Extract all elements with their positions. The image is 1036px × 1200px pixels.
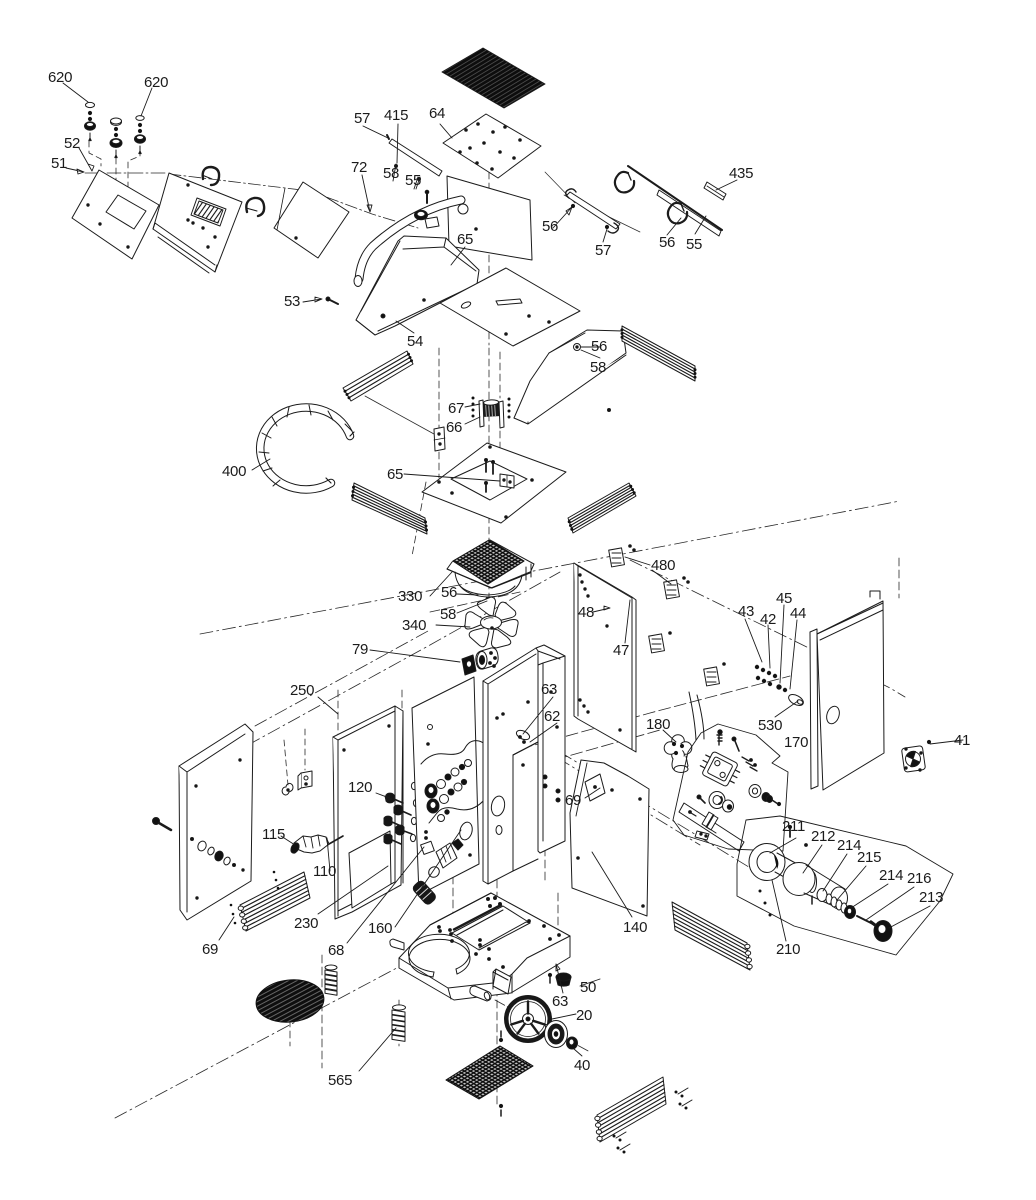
- svg-text:41: 41: [954, 732, 970, 749]
- svg-text:55: 55: [405, 172, 421, 189]
- svg-text:211: 211: [782, 818, 805, 835]
- svg-text:415: 415: [384, 107, 408, 124]
- svg-text:213: 213: [919, 889, 943, 906]
- svg-text:160: 160: [368, 920, 392, 937]
- svg-text:215: 215: [857, 849, 881, 866]
- svg-text:65: 65: [457, 231, 473, 248]
- svg-text:63: 63: [541, 681, 557, 698]
- svg-text:480: 480: [651, 557, 675, 574]
- svg-text:47: 47: [613, 642, 629, 659]
- svg-text:51: 51: [51, 155, 67, 172]
- svg-text:214: 214: [879, 867, 903, 884]
- svg-text:330: 330: [398, 588, 422, 605]
- svg-text:115: 115: [262, 826, 285, 843]
- svg-text:72: 72: [351, 159, 367, 176]
- svg-text:42: 42: [760, 611, 776, 628]
- svg-text:230: 230: [294, 915, 318, 932]
- svg-text:44: 44: [790, 605, 806, 622]
- svg-text:69: 69: [202, 941, 218, 958]
- svg-text:79: 79: [352, 641, 368, 658]
- svg-text:50: 50: [580, 979, 596, 996]
- svg-text:170: 170: [784, 734, 808, 751]
- svg-text:68: 68: [328, 942, 344, 959]
- svg-text:53: 53: [284, 293, 300, 310]
- svg-text:110: 110: [313, 863, 336, 880]
- svg-text:48: 48: [578, 604, 594, 621]
- svg-text:435: 435: [729, 165, 753, 182]
- svg-text:56: 56: [659, 234, 675, 251]
- svg-text:54: 54: [407, 333, 423, 350]
- svg-text:67: 67: [448, 400, 464, 417]
- svg-text:250: 250: [290, 682, 314, 699]
- svg-text:20: 20: [576, 1007, 592, 1024]
- svg-text:58: 58: [590, 359, 606, 376]
- svg-text:56: 56: [542, 218, 558, 235]
- svg-text:530: 530: [758, 717, 782, 734]
- svg-text:58: 58: [440, 606, 456, 623]
- svg-text:57: 57: [595, 242, 611, 259]
- svg-text:56: 56: [591, 338, 607, 355]
- svg-text:565: 565: [328, 1072, 352, 1089]
- svg-text:140: 140: [623, 919, 647, 936]
- svg-text:64: 64: [429, 105, 445, 122]
- svg-text:56: 56: [441, 584, 457, 601]
- svg-text:180: 180: [646, 716, 670, 733]
- svg-text:65: 65: [387, 466, 403, 483]
- svg-text:43: 43: [738, 603, 754, 620]
- svg-text:62: 62: [544, 708, 560, 725]
- svg-text:340: 340: [402, 617, 426, 634]
- svg-text:210: 210: [776, 941, 800, 958]
- svg-text:216: 216: [907, 870, 931, 887]
- svg-text:63: 63: [552, 993, 568, 1010]
- svg-text:212: 212: [811, 828, 835, 845]
- svg-text:55: 55: [686, 236, 702, 253]
- svg-text:69: 69: [565, 792, 581, 809]
- svg-text:620: 620: [144, 74, 168, 91]
- svg-text:58: 58: [383, 165, 399, 182]
- svg-text:400: 400: [222, 463, 246, 480]
- svg-text:620: 620: [48, 69, 72, 86]
- svg-text:52: 52: [64, 135, 80, 152]
- svg-text:40: 40: [574, 1057, 590, 1074]
- svg-text:120: 120: [348, 779, 372, 796]
- svg-text:57: 57: [354, 110, 370, 127]
- svg-text:66: 66: [446, 419, 462, 436]
